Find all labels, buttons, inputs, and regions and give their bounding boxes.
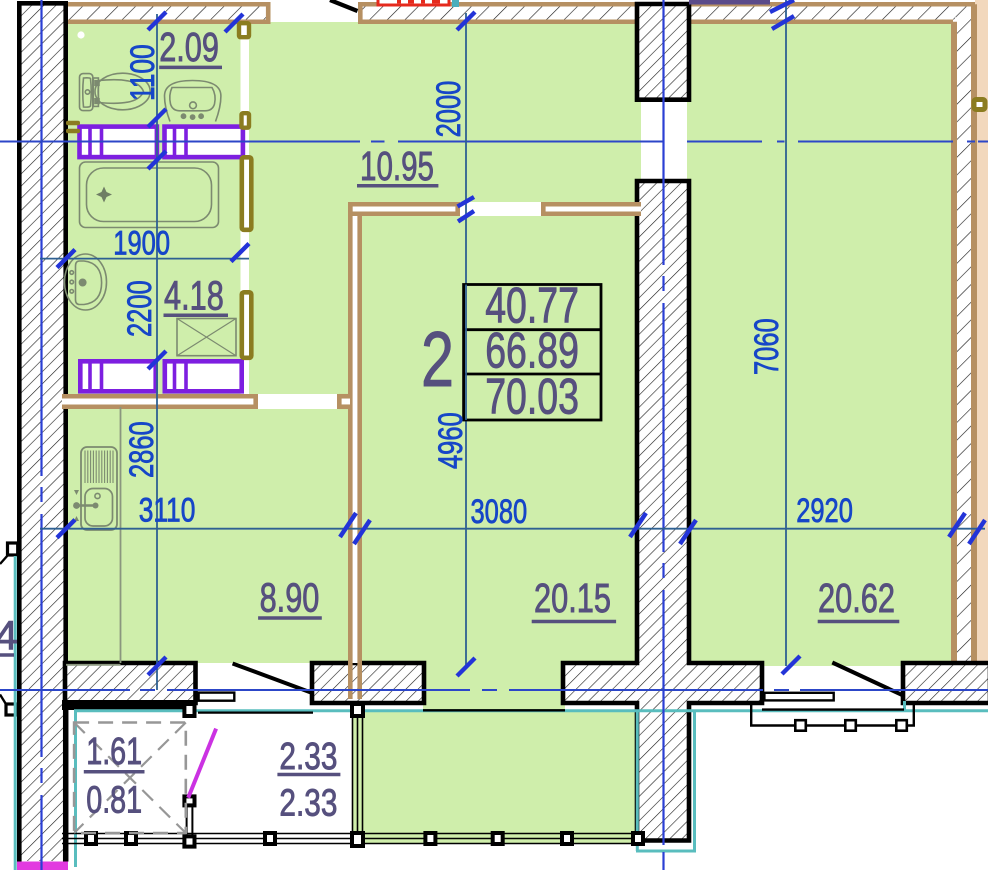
svg-text:2860: 2860 <box>123 421 161 478</box>
svg-text:2.09: 2.09 <box>159 24 219 70</box>
svg-text:10.95: 10.95 <box>360 143 434 189</box>
svg-text:70.03: 70.03 <box>485 369 579 425</box>
svg-text:2: 2 <box>421 315 454 403</box>
svg-text:0.81: 0.81 <box>86 779 142 821</box>
svg-text:2920: 2920 <box>796 492 853 530</box>
svg-text:7060: 7060 <box>748 318 786 375</box>
svg-text:1.61: 1.61 <box>86 731 142 773</box>
svg-text:4960: 4960 <box>432 412 470 469</box>
svg-text:2.33: 2.33 <box>279 783 337 825</box>
svg-text:2000: 2000 <box>430 81 468 138</box>
svg-text:1100: 1100 <box>124 44 162 101</box>
svg-text:20.62: 20.62 <box>818 575 895 621</box>
svg-text:2.33: 2.33 <box>279 736 337 778</box>
svg-text:4: 4 <box>0 613 18 659</box>
svg-text:1900: 1900 <box>113 225 170 263</box>
svg-text:2200: 2200 <box>121 280 159 337</box>
svg-text:20.15: 20.15 <box>534 575 611 621</box>
svg-text:3080: 3080 <box>471 493 528 531</box>
svg-text:4.18: 4.18 <box>164 272 224 318</box>
svg-text:3110: 3110 <box>139 492 196 530</box>
svg-text:8.90: 8.90 <box>260 575 320 621</box>
